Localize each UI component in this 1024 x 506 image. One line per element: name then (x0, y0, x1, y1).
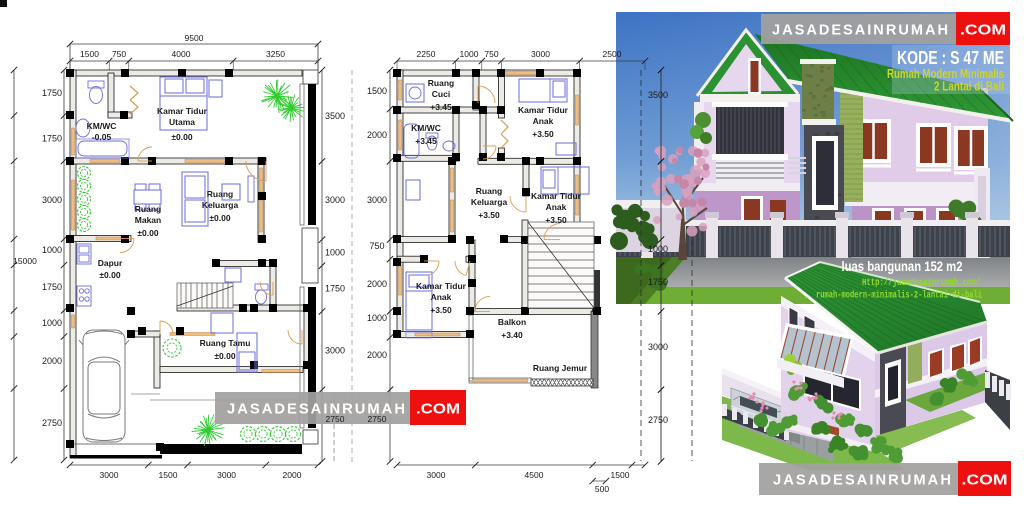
svg-text:1000: 1000 (367, 313, 387, 323)
svg-text:rumah-modern-minimalis-2-lanta: rumah-modern-minimalis-2-lantai-di-bali (816, 290, 982, 302)
svg-text:2000: 2000 (42, 356, 62, 366)
svg-text:1500: 1500 (159, 470, 178, 480)
svg-text:±0.00: ±0.00 (99, 270, 120, 280)
svg-text:2 Lantai di Bali: 2 Lantai di Bali (934, 80, 1004, 94)
svg-text:2500: 2500 (603, 49, 622, 59)
svg-text:Ruang Jemur: Ruang Jemur (533, 363, 588, 373)
svg-text:Http://jasadesainrumah.com/: Http://jasadesainrumah.com/ (862, 277, 980, 289)
svg-text:Keluarga: Keluarga (471, 197, 508, 207)
svg-text:Cuci: Cuci (432, 89, 450, 99)
svg-text:JASADESAINRUMAH: JASADESAINRUMAH (772, 22, 950, 38)
svg-text:Ruang: Ruang (476, 186, 502, 196)
svg-text:±0.00: ±0.00 (209, 213, 230, 223)
svg-text:+3.40: +3.40 (501, 330, 523, 340)
svg-text:750: 750 (484, 49, 498, 59)
svg-text:.COM: .COM (416, 401, 460, 417)
svg-text:Balkon: Balkon (498, 317, 526, 327)
svg-text:KODE : S 47 ME: KODE : S 47 ME (897, 48, 1004, 68)
svg-text:750: 750 (369, 241, 384, 251)
svg-text:1000: 1000 (42, 245, 62, 255)
svg-text:+3.45: +3.45 (430, 102, 452, 112)
svg-text:2000: 2000 (367, 130, 387, 140)
svg-text:1500: 1500 (80, 49, 99, 59)
svg-text:1750: 1750 (42, 282, 62, 292)
svg-text:Makan: Makan (135, 215, 161, 225)
svg-text:Kamar Tidur: Kamar Tidur (416, 281, 467, 291)
svg-text:luas bangunan 152 m2: luas bangunan 152 m2 (842, 258, 963, 274)
svg-text:1000: 1000 (460, 49, 479, 59)
svg-text:Ruang: Ruang (207, 189, 233, 199)
svg-text:1750: 1750 (648, 277, 668, 287)
svg-text:2250: 2250 (417, 49, 436, 59)
svg-text:Ruang: Ruang (135, 204, 161, 214)
svg-text:2750: 2750 (42, 418, 62, 428)
svg-text:1000: 1000 (648, 244, 668, 254)
svg-text:3000: 3000 (531, 49, 550, 59)
svg-text:3000: 3000 (100, 470, 119, 480)
svg-text:4500: 4500 (525, 470, 544, 480)
svg-text:2750: 2750 (648, 415, 668, 425)
svg-text:3000: 3000 (325, 195, 345, 205)
svg-text:Dapur: Dapur (98, 258, 123, 268)
svg-text:Utama: Utama (169, 117, 195, 127)
svg-text:Ruang Tamu: Ruang Tamu (200, 338, 251, 348)
svg-text:1750: 1750 (42, 88, 62, 98)
svg-text:2750: 2750 (368, 414, 387, 424)
svg-text:Anak: Anak (431, 292, 452, 302)
svg-text:3000: 3000 (648, 342, 668, 352)
svg-text:+3.50: +3.50 (532, 129, 554, 139)
svg-text:±0.00: ±0.00 (171, 132, 192, 142)
svg-text:±0.00: ±0.00 (214, 351, 235, 361)
svg-text:3000: 3000 (367, 195, 387, 205)
svg-text:1000: 1000 (325, 248, 345, 258)
svg-text:.COM: .COM (960, 22, 1006, 38)
svg-text:1750: 1750 (42, 134, 62, 144)
svg-text:.COM: .COM (962, 472, 1008, 488)
svg-text:3000: 3000 (217, 470, 236, 480)
svg-text:1500: 1500 (611, 470, 630, 480)
svg-text:3000: 3000 (325, 346, 345, 356)
svg-text:4000: 4000 (172, 49, 191, 59)
svg-text:KM/WC: KM/WC (411, 123, 441, 133)
svg-text:1750: 1750 (325, 284, 345, 294)
svg-text:9500: 9500 (185, 33, 204, 43)
svg-text:+3.50: +3.50 (430, 305, 452, 315)
svg-text:Ruang: Ruang (428, 78, 454, 88)
svg-text:Kamar Tidur: Kamar Tidur (531, 191, 582, 201)
svg-text:Keluarga: Keluarga (202, 200, 239, 210)
svg-text:3000: 3000 (42, 195, 62, 205)
svg-text:1500: 1500 (367, 86, 387, 96)
svg-text:KM/WC: KM/WC (87, 121, 117, 131)
svg-text:3250: 3250 (266, 49, 285, 59)
svg-text:2750: 2750 (326, 414, 345, 424)
svg-text:2000: 2000 (283, 470, 302, 480)
svg-text:JASADESAINRUMAH: JASADESAINRUMAH (773, 472, 953, 488)
svg-text:500: 500 (595, 484, 609, 494)
svg-text:3000: 3000 (427, 470, 446, 480)
svg-text:3500: 3500 (325, 111, 345, 121)
svg-text:Kamar Tidur: Kamar Tidur (518, 105, 569, 115)
svg-text:±0.00: ±0.00 (137, 228, 158, 238)
svg-text:15000: 15000 (13, 256, 37, 266)
svg-text:+3.50: +3.50 (478, 210, 500, 220)
svg-text:+3.45: +3.45 (415, 136, 437, 146)
svg-text:Kamar Tidur: Kamar Tidur (157, 106, 208, 116)
svg-text:Anak: Anak (546, 202, 567, 212)
svg-text:2000: 2000 (367, 350, 387, 360)
svg-text:+3.50: +3.50 (545, 215, 567, 225)
svg-text:Anak: Anak (533, 116, 554, 126)
svg-text:750: 750 (112, 49, 126, 59)
svg-text:1000: 1000 (42, 318, 62, 328)
svg-text:3500: 3500 (648, 90, 668, 100)
svg-text:2000: 2000 (367, 279, 387, 289)
svg-text:-0.05: -0.05 (92, 132, 112, 142)
